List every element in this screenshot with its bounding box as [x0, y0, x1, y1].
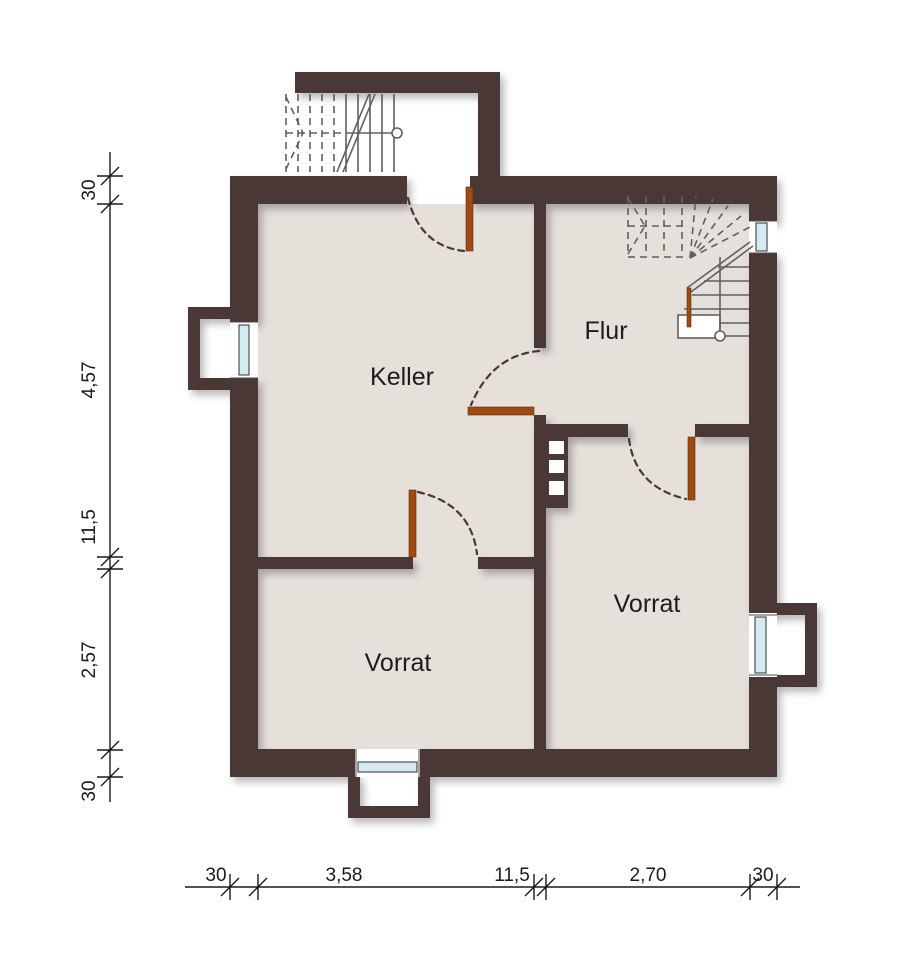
- dimension-label: 30: [752, 865, 773, 886]
- dimension-label: 2,70: [630, 865, 667, 886]
- dimension-label: 30: [79, 179, 100, 200]
- dimension-label: 2,57: [79, 642, 100, 679]
- dimension-label: 11,5: [494, 865, 530, 886]
- dimension-label: 11,5: [79, 509, 100, 545]
- dimension-label: 3,58: [326, 865, 363, 886]
- dimension-chain-left: 30 4,57 11,5 2,57 30: [79, 152, 123, 802]
- stair-door-leaf: [687, 288, 691, 327]
- top-door-opening: [407, 176, 470, 204]
- right-light-shaft-floor: [775, 615, 805, 675]
- main-floor: [258, 204, 750, 750]
- room-label-vorrat-right: Vorrat: [614, 590, 681, 618]
- chimney-flues: [549, 441, 564, 495]
- dimension-chain-bottom: 30 3,58 11,5 2,70 30: [185, 865, 800, 900]
- window-vorrat-right: [749, 613, 777, 677]
- bottom-light-shaft-floor: [360, 777, 418, 806]
- left-light-shaft-floor: [200, 319, 230, 378]
- room-label-flur: Flur: [584, 317, 627, 345]
- room-label-keller: Keller: [370, 363, 434, 391]
- floor-plan-page: Keller Flur Vorrat Vorrat 30 4,57 11,5 2…: [0, 0, 920, 960]
- floor-plan-svg: Keller Flur Vorrat Vorrat 30 4,57 11,5 2…: [0, 0, 920, 960]
- dimension-label: 30: [79, 780, 100, 801]
- room-label-vorrat-left: Vorrat: [365, 649, 432, 677]
- dimension-label: 30: [205, 865, 226, 886]
- window-left: [230, 322, 258, 378]
- window-flur: [749, 221, 777, 253]
- window-bottom: [355, 749, 420, 777]
- dimension-label: 4,57: [79, 362, 100, 399]
